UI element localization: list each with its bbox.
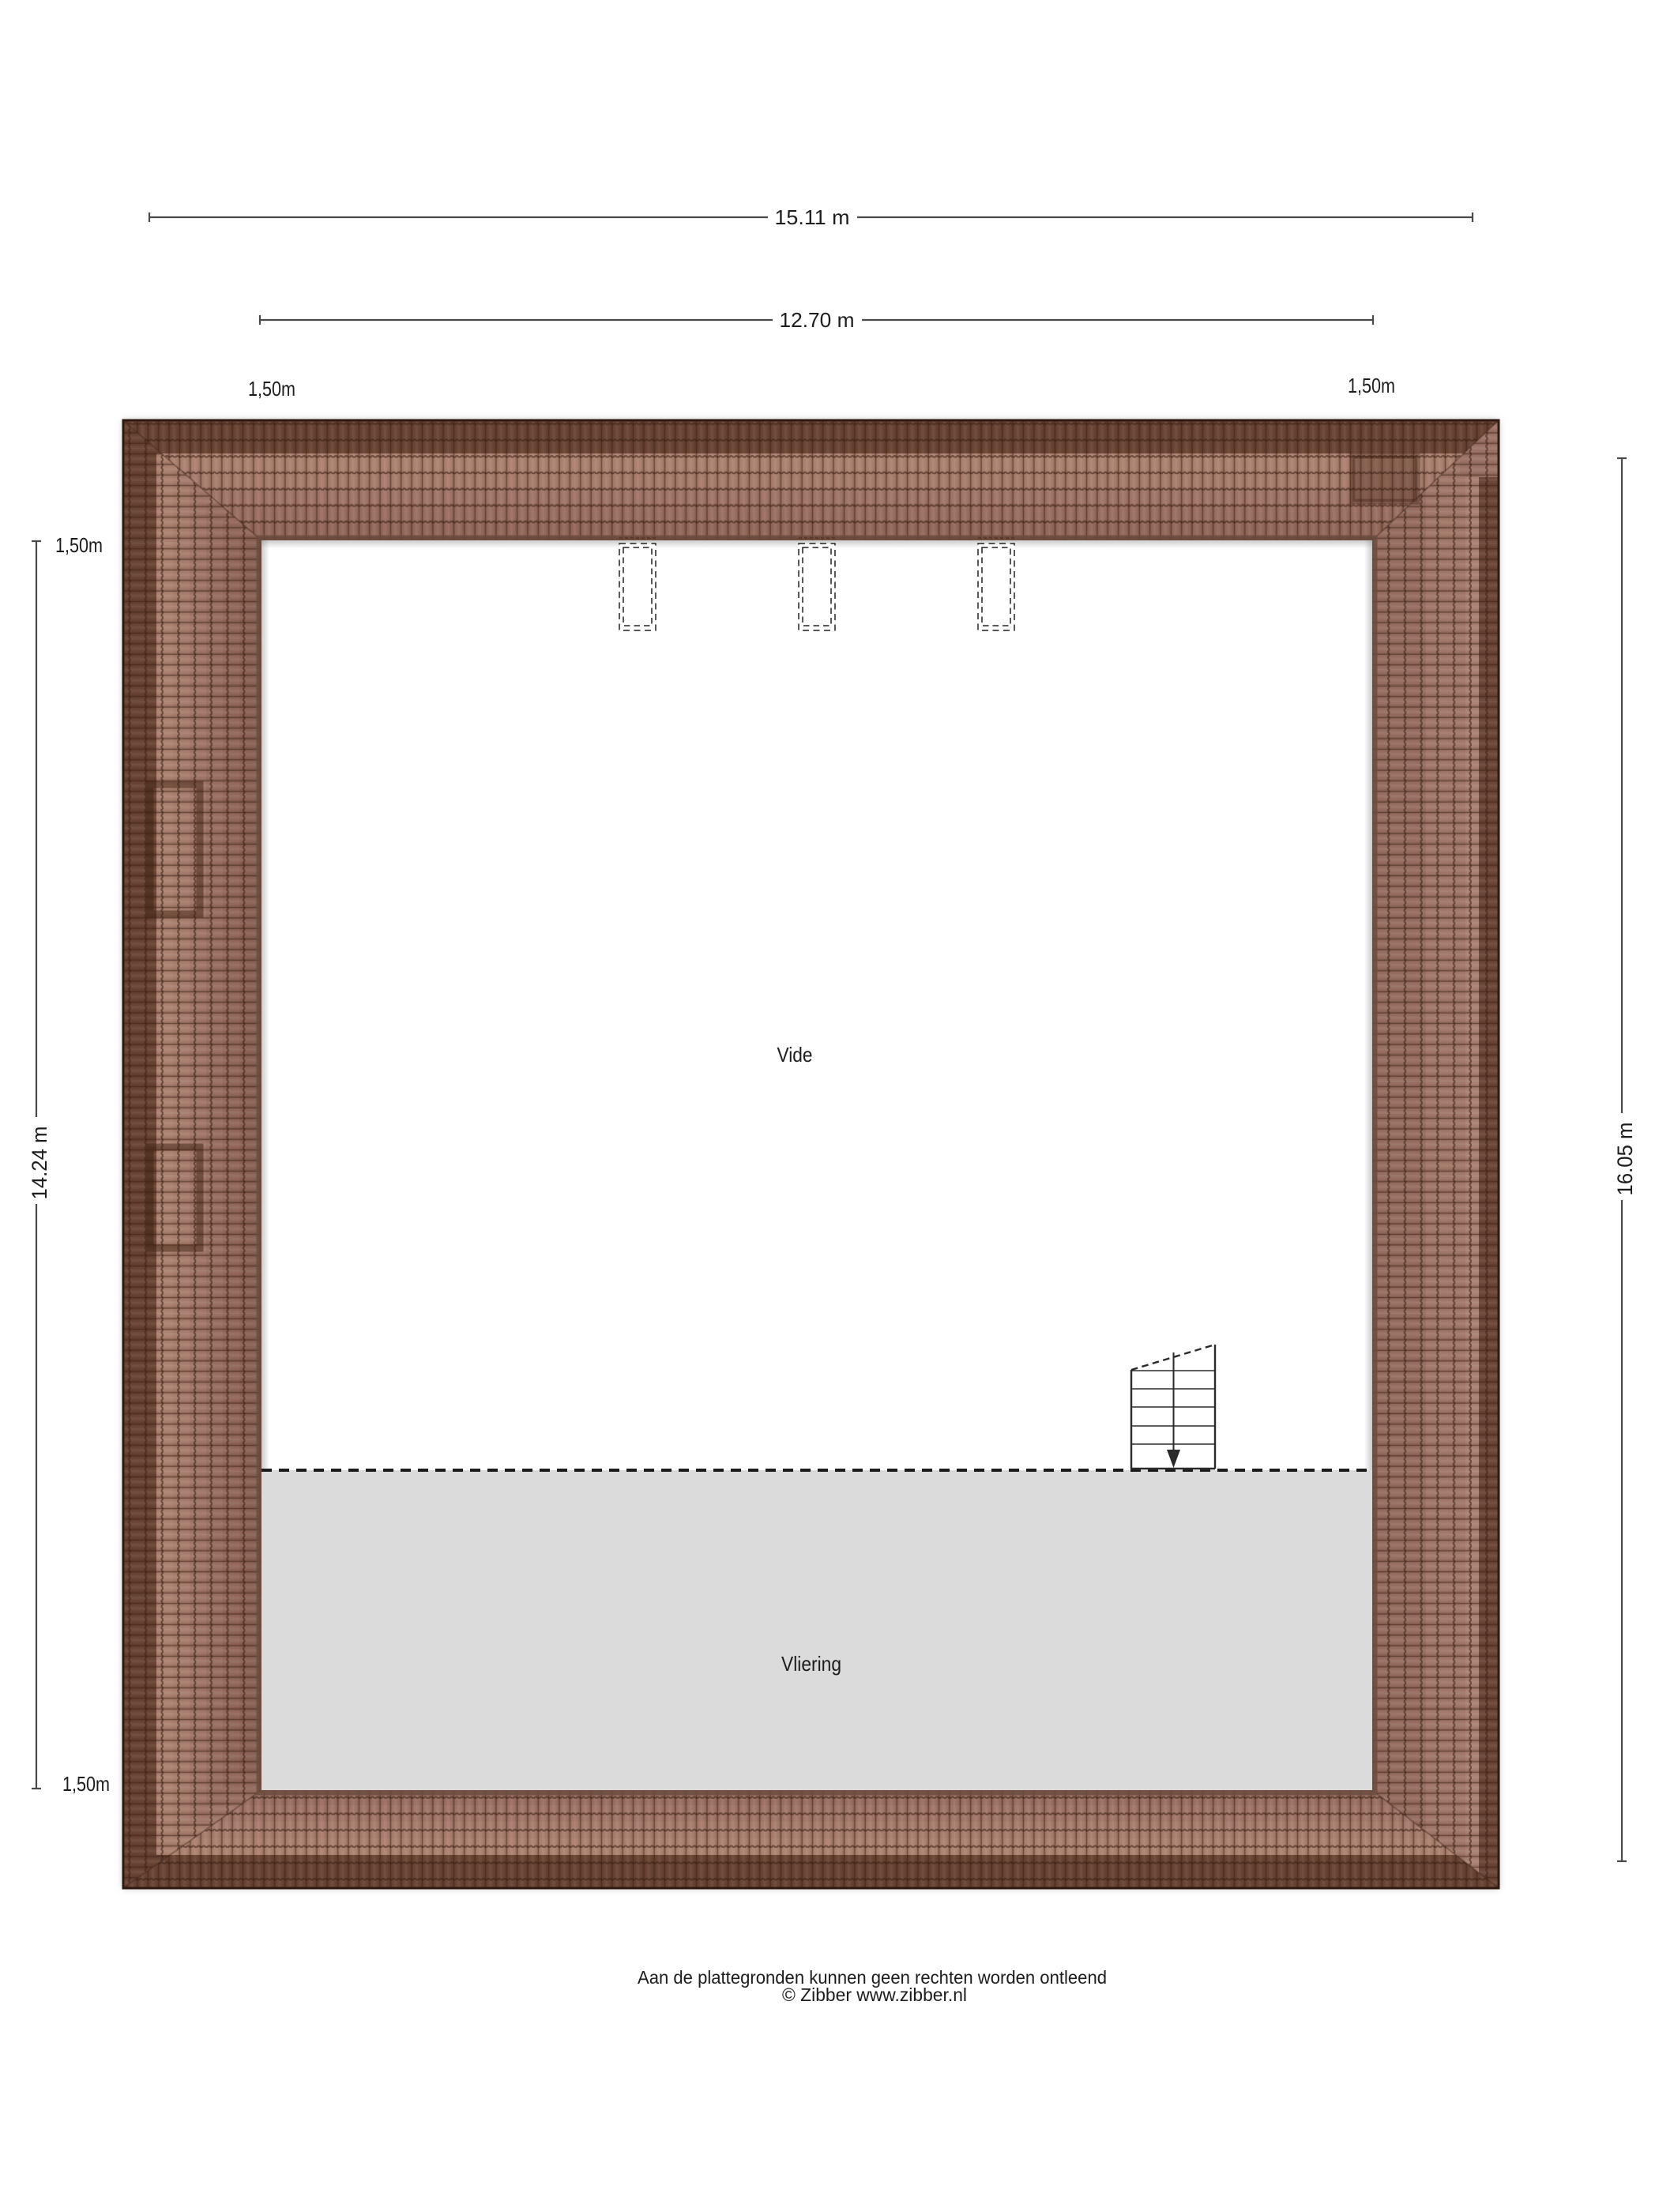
- svg-text:12.70 m: 12.70 m: [780, 308, 855, 332]
- svg-text:1,50m: 1,50m: [248, 377, 295, 401]
- svg-text:Vliering: Vliering: [781, 1652, 841, 1676]
- svg-text:1,50m: 1,50m: [55, 533, 103, 557]
- svg-text:16.05 m: 16.05 m: [1613, 1123, 1637, 1196]
- svg-text:14.24 m: 14.24 m: [28, 1127, 51, 1200]
- svg-text:© Zibber www.zibber.nl: © Zibber www.zibber.nl: [782, 1984, 967, 2005]
- svg-text:1,50m: 1,50m: [1348, 374, 1395, 397]
- svg-text:1,50m: 1,50m: [62, 1772, 110, 1796]
- svg-text:15.11 m: 15.11 m: [775, 205, 850, 229]
- svg-text:Vide: Vide: [777, 1043, 813, 1066]
